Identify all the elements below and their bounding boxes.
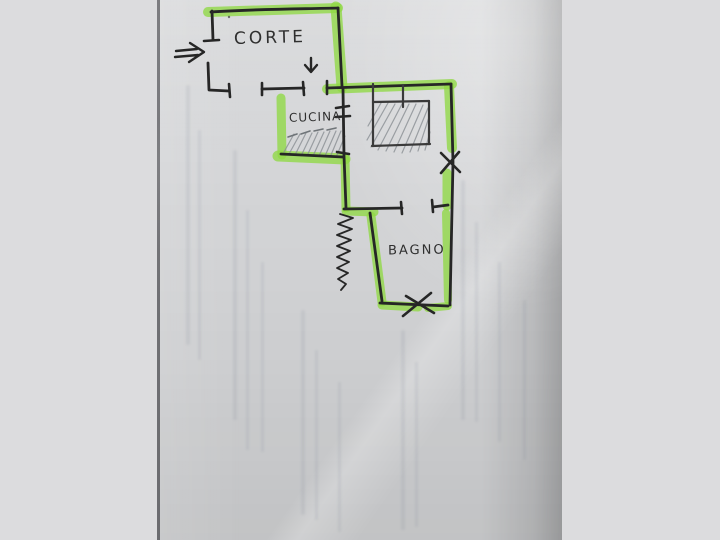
door-jamb-tick	[303, 82, 304, 95]
room-label-corte: CORTE	[234, 27, 306, 49]
ink-symbols	[175, 16, 460, 316]
wall-mid-door-right	[433, 205, 448, 207]
wall-corte-left-lower	[208, 63, 229, 91]
door-jamb-tick	[229, 84, 230, 97]
door-jamb-tick	[432, 200, 433, 212]
wall-corte-left-upper	[212, 11, 213, 40]
coil-squiggle	[337, 214, 353, 290]
wall-mid-horizontal	[344, 208, 402, 209]
floorplan-drawing	[0, 0, 720, 540]
ink-dot	[228, 16, 230, 18]
wall-corte-bottom-segment	[262, 88, 304, 89]
ink-walls	[208, 8, 453, 306]
down-arrow-icon	[305, 58, 317, 72]
room-label-cucina: CUCINA	[289, 109, 342, 125]
door-jamb-tick	[401, 202, 402, 214]
door-jamb-tick	[204, 40, 219, 41]
entrance-double-arrow-icon	[175, 43, 204, 62]
ink-ticks	[204, 40, 433, 214]
x-mark-right-wall	[441, 152, 460, 173]
room-label-bagno: BAGNO	[388, 242, 446, 258]
photo-of-floorplan-sketch: CORTE CUCINA BAGNO	[0, 0, 720, 540]
